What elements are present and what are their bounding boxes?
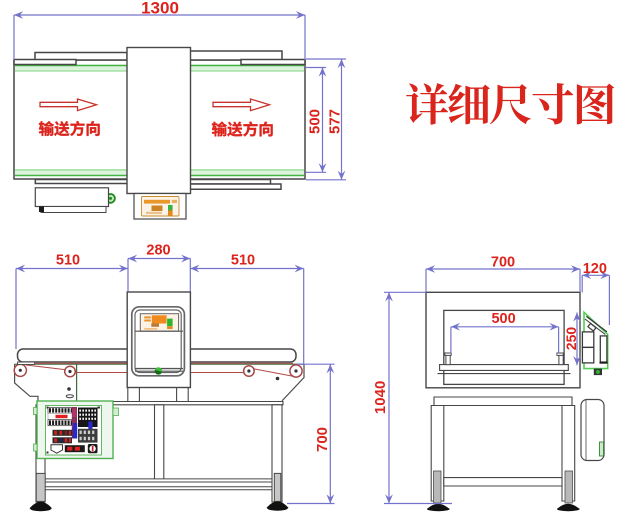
svg-text:510: 510 <box>56 253 80 269</box>
svg-text:700: 700 <box>314 427 331 452</box>
svg-text:280: 280 <box>146 243 170 259</box>
svg-text:1300: 1300 <box>141 0 179 18</box>
svg-text:250: 250 <box>563 327 579 351</box>
svg-text:1040: 1040 <box>372 381 389 414</box>
svg-text:120: 120 <box>583 261 607 277</box>
svg-text:500: 500 <box>307 109 324 134</box>
svg-text:700: 700 <box>491 255 515 271</box>
svg-text:510: 510 <box>231 253 255 269</box>
svg-text:577: 577 <box>327 109 344 134</box>
svg-text:500: 500 <box>491 311 515 327</box>
